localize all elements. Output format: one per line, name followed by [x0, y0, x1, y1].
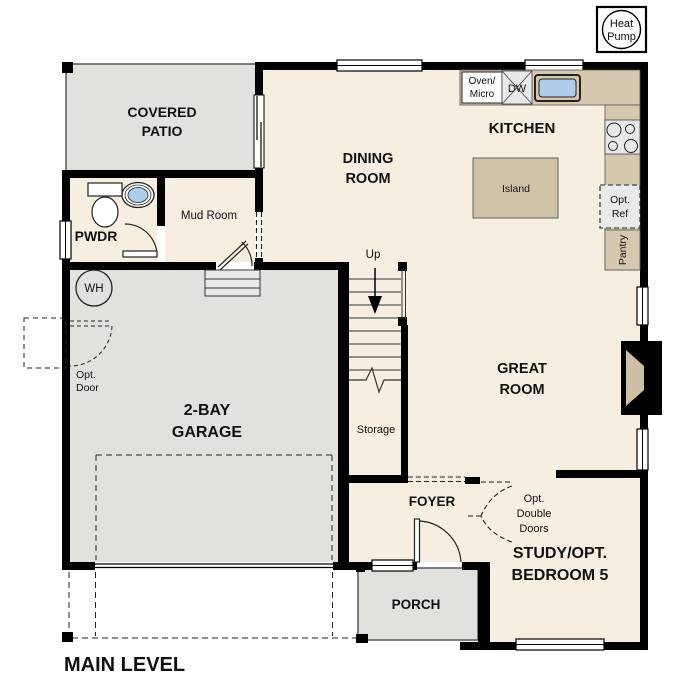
opt-double-doors-label-1: Opt.	[524, 493, 545, 505]
mud-room-label: Mud Room	[181, 210, 237, 222]
patio-post-topleft	[62, 62, 73, 73]
wall-segment-top	[255, 62, 648, 70]
wall-segment-garage-stairs	[338, 262, 349, 562]
opt-double-doors-label-2: Double	[517, 508, 552, 520]
garage-label-2: GARAGE	[172, 424, 243, 441]
kitchen-label: KITCHEN	[489, 120, 556, 137]
dining-label-1: DINING	[343, 151, 394, 167]
wall-segment-left-lower	[62, 258, 70, 570]
heat-pump-label-2: Pump	[607, 31, 636, 43]
garage-label-1: 2-BAY	[184, 402, 231, 419]
floor-plan-drawing: COVERED PATIO PWDR Mud Room DINING ROOM …	[0, 0, 687, 687]
wall-segment-foyer-bottom-right	[462, 562, 490, 570]
great-room-label-2: ROOM	[499, 382, 544, 398]
fireplace	[621, 341, 662, 415]
patio-sliding-door	[254, 95, 264, 168]
wall-segment-garage-top-left	[62, 262, 216, 270]
dining-label-2: ROOM	[345, 171, 390, 187]
wall-segment-stairs-right	[401, 325, 408, 477]
window-kitchen-top	[525, 60, 583, 71]
driveway-post	[62, 632, 73, 642]
opt-ref-box	[600, 185, 640, 228]
kitchen-sink	[535, 75, 580, 101]
toilet-tank	[88, 183, 122, 196]
window-greatroom-right-upper	[637, 287, 648, 325]
wall-segment-storage-bottom	[338, 475, 408, 483]
window-study-bottom	[516, 639, 604, 650]
floor-plan-canvas: COVERED PATIO PWDR Mud Room DINING ROOM …	[0, 0, 687, 687]
wall-segment-right-lower	[640, 470, 648, 650]
wall-segment-mud-dining-lower	[255, 258, 263, 270]
garage-steps	[205, 270, 260, 296]
pwdr-label: PWDR	[75, 228, 118, 244]
opt-door-label-2: Door	[76, 382, 99, 394]
study-label-1: STUDY/OPT.	[513, 545, 607, 562]
window-foyer-bottom	[372, 560, 413, 571]
porch-post-topleft	[356, 562, 365, 572]
pantry-label: Pantry	[617, 234, 629, 265]
porch-label: PORCH	[392, 597, 441, 612]
toilet-bowl	[92, 197, 118, 227]
window-dining-top	[337, 60, 422, 71]
window-greatroom-right-lower	[637, 429, 648, 470]
dw-label: DW	[508, 83, 527, 95]
opt-ref-label-2: Ref	[612, 208, 628, 220]
oven-micro-label-2: Micro	[470, 89, 495, 100]
plan-title: MAIN LEVEL	[64, 654, 185, 676]
wall-segment-pwdr-right	[157, 178, 165, 226]
wall-segment-patio-pwdr	[62, 170, 258, 178]
porch-post-bottomleft	[356, 634, 368, 643]
opt-door-label-1: Opt.	[76, 369, 96, 381]
wall-segment-study-left	[478, 562, 490, 650]
wall-segment-study-top	[556, 470, 646, 478]
wall-segment-mud-dining-upper	[255, 168, 263, 212]
wall-segment-right-mid1	[640, 325, 648, 342]
opt-ref-label-1: Opt.	[610, 194, 630, 206]
wall-segment-right-upper	[640, 70, 648, 288]
covered-patio-label-2: PATIO	[142, 123, 183, 139]
wall-segment-garage-bottom-right	[333, 562, 345, 570]
oven-micro-label-1: Oven/	[469, 76, 496, 87]
wall-segment-garage-top-right	[254, 262, 345, 270]
study-label-2: BEDROOM 5	[512, 567, 609, 584]
island-label: Island	[502, 183, 530, 195]
wall-stub-foyer-study	[465, 477, 480, 484]
great-room-label-1: GREAT	[497, 361, 547, 377]
covered-patio-label-1: COVERED	[127, 104, 196, 120]
pwdr-sink	[122, 183, 154, 208]
up-label: Up	[366, 249, 381, 261]
opt-double-doors-label-3: Doors	[519, 523, 549, 535]
storage-label: Storage	[357, 424, 396, 436]
wall-segment-right-mid2	[640, 414, 648, 430]
wh-label: WH	[84, 283, 103, 295]
wall-segment-garage-bottom-left	[62, 562, 95, 570]
cooktop	[605, 120, 640, 154]
window-pwdr-left	[60, 221, 71, 259]
greatroom-foyer-floor	[349, 262, 640, 562]
wall-segment-patio-dining-upper	[255, 62, 263, 95]
garage-door	[95, 562, 333, 570]
foyer-label: FOYER	[409, 494, 456, 509]
heat-pump-label-1: Heat	[610, 18, 633, 30]
garage-door-opening	[95, 562, 333, 570]
